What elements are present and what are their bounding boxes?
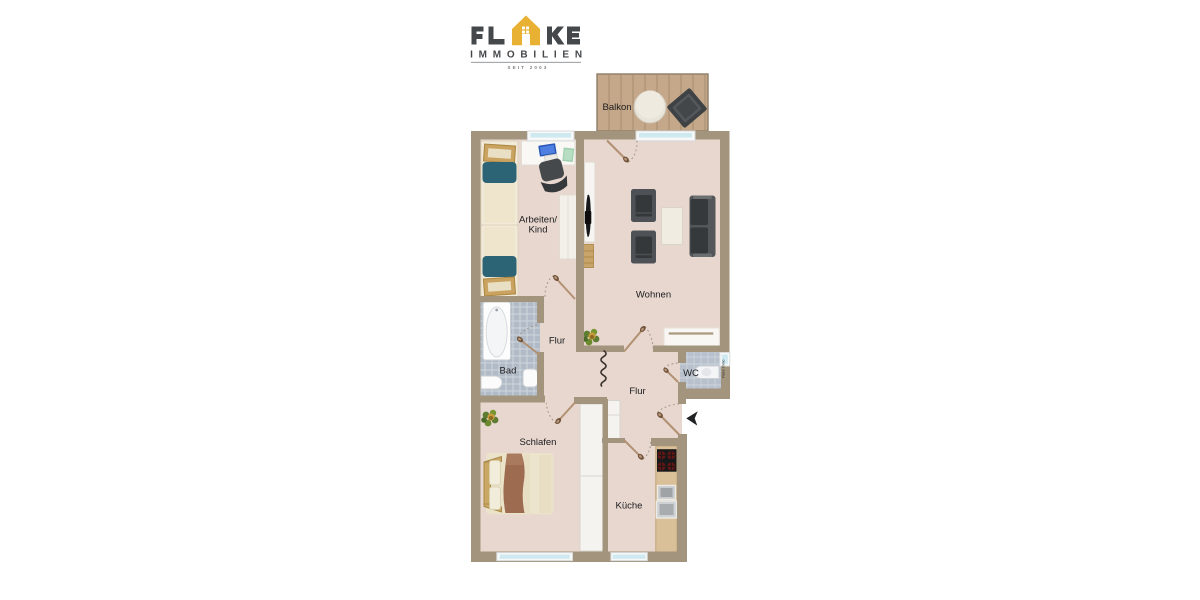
svg-text:IMMOBILIEN: IMMOBILIEN <box>470 50 588 61</box>
svg-text:Flur: Flur <box>549 336 565 347</box>
svg-text:Wohnen: Wohnen <box>636 290 671 301</box>
svg-text:Flake Immo: Flake Immo <box>722 359 726 378</box>
svg-text:Bad: Bad <box>500 366 517 377</box>
svg-text:SEIT 2003: SEIT 2003 <box>507 65 548 70</box>
svg-text:Balkon: Balkon <box>603 102 632 113</box>
svg-text:WC: WC <box>683 368 699 379</box>
svg-text:Schlafen: Schlafen <box>520 437 557 448</box>
svg-text:Flur: Flur <box>629 386 645 397</box>
svg-text:Küche: Küche <box>616 501 643 512</box>
svg-text:Kind: Kind <box>528 225 547 236</box>
